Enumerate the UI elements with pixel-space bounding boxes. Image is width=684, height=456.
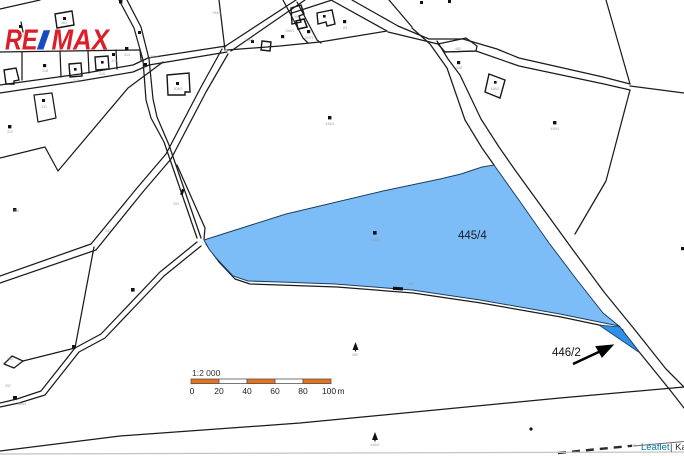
svg-text:20: 20 [214,386,224,396]
svg-text:m: m [337,386,344,396]
svg-text:MAX: MAX [52,24,111,56]
svg-text:Leaflet: Leaflet [641,442,670,453]
svg-text:318: 318 [42,69,48,73]
svg-text:264/4: 264/4 [245,38,254,42]
svg-text:445/1: 445/1 [326,122,335,126]
svg-text:486/1: 486/1 [18,402,27,406]
svg-text:316: 316 [99,72,105,76]
svg-text:312: 312 [7,130,13,134]
svg-text:40: 40 [242,386,252,396]
svg-text:452: 452 [408,282,414,286]
svg-text:446/2: 446/2 [552,347,581,359]
svg-text:446/1: 446/1 [371,443,380,447]
svg-text:290: 290 [13,209,19,213]
svg-text:RE: RE [5,24,39,56]
svg-text:308/2: 308/2 [174,87,183,91]
svg-text:458: 458 [456,66,462,70]
svg-text:317: 317 [73,79,79,83]
svg-text:459/1: 459/1 [551,127,560,131]
svg-text:100: 100 [322,386,336,396]
svg-text:445/3: 445/3 [371,238,380,242]
svg-text:264/6: 264/6 [213,11,222,15]
svg-text:99: 99 [294,15,298,19]
svg-text:80: 80 [298,386,308,396]
svg-text:445/4: 445/4 [458,230,487,242]
svg-text:311: 311 [41,105,47,109]
svg-text:314: 314 [124,53,130,57]
svg-text:450: 450 [352,353,358,357]
svg-text:| Kat: | Kat [670,442,684,453]
svg-text:295: 295 [7,357,13,361]
svg-text:458/2: 458/2 [491,87,500,91]
svg-text:60: 60 [270,386,280,396]
svg-text:462: 462 [455,47,461,51]
svg-text:0: 0 [190,386,195,396]
svg-text:83: 83 [343,26,347,30]
svg-text:2614: 2614 [150,55,158,59]
svg-text:315: 315 [111,59,117,63]
svg-text:293: 293 [173,202,179,206]
svg-text:297/1: 297/1 [305,36,314,40]
svg-text:1:2 000: 1:2 000 [192,368,221,378]
svg-text:247: 247 [105,229,111,233]
svg-text:297: 297 [5,384,11,388]
svg-text:266/1: 266/1 [286,29,295,33]
